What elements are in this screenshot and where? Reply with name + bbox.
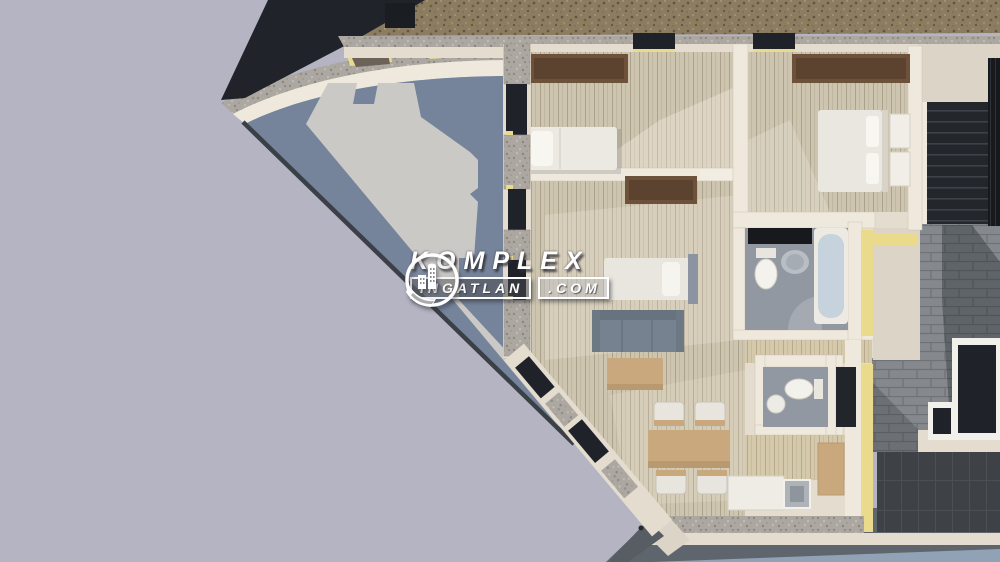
doorway-threshold bbox=[753, 49, 795, 52]
headboard bbox=[882, 110, 888, 192]
bottom-stone-cap bbox=[652, 516, 864, 533]
roof-hatch bbox=[385, 3, 415, 28]
dresser-inner bbox=[629, 180, 693, 200]
door-opening bbox=[700, 169, 733, 180]
pillow bbox=[662, 262, 680, 296]
insulation-strip bbox=[861, 230, 873, 336]
floorplan-render: KOMPLEX INGATLAN .COM bbox=[0, 0, 1000, 562]
coffee-table-edge bbox=[607, 384, 663, 390]
doorway-recess bbox=[633, 33, 675, 49]
wall-bedrooms-divider bbox=[733, 44, 748, 230]
sink-basin bbox=[786, 254, 804, 270]
toilet bbox=[755, 259, 777, 289]
wc bbox=[763, 367, 856, 427]
wall-bathroom-left bbox=[733, 228, 745, 337]
stone-pillar bbox=[504, 135, 530, 189]
facade-dot bbox=[639, 526, 644, 531]
sofa-armrest bbox=[592, 310, 600, 352]
stair-railing-slats bbox=[988, 58, 1000, 226]
stone-pillar bbox=[504, 44, 530, 84]
insulation-strip bbox=[873, 233, 918, 245]
daybed-headboard bbox=[688, 254, 698, 304]
bathroom-counter bbox=[748, 228, 812, 244]
dark-panel-roof bbox=[877, 452, 1000, 532]
pillow bbox=[866, 153, 879, 184]
doorway-recess bbox=[753, 33, 795, 49]
chair-back bbox=[656, 470, 686, 476]
dark-closet bbox=[836, 367, 856, 427]
wardrobe-inner bbox=[534, 58, 624, 79]
facade-window bbox=[506, 84, 527, 135]
sofa-back bbox=[592, 310, 684, 320]
toilet-tank bbox=[756, 248, 776, 258]
gravel-roof-band bbox=[326, 0, 1000, 36]
dining-table-edge bbox=[648, 461, 730, 468]
chair-back bbox=[697, 470, 727, 476]
watermark-domain-tld: .COM bbox=[538, 277, 609, 299]
pillow bbox=[866, 116, 879, 147]
komplex-logo-icon bbox=[402, 249, 462, 311]
skylight-glass-small bbox=[933, 408, 951, 434]
nightstand bbox=[890, 114, 910, 148]
pillow bbox=[531, 131, 553, 166]
sink-basin bbox=[790, 486, 804, 502]
kitchen-counter bbox=[728, 476, 784, 510]
nightstand bbox=[890, 152, 910, 186]
wardrobe-inner bbox=[796, 58, 906, 79]
watermark: KOMPLEX INGATLAN .COM bbox=[402, 249, 609, 299]
kitchen-cabinet bbox=[818, 443, 844, 495]
wc-toilet-tank bbox=[814, 379, 823, 399]
pillar-cap bbox=[506, 131, 513, 135]
insulation-strip bbox=[861, 364, 873, 532]
doorway-threshold bbox=[633, 49, 675, 52]
chair-back bbox=[695, 420, 725, 426]
chair-back bbox=[654, 420, 684, 426]
wall-bathroom-right bbox=[848, 222, 862, 340]
wc-toilet bbox=[785, 379, 813, 399]
wall-kitchen-right bbox=[845, 340, 861, 516]
wc-sink bbox=[767, 395, 785, 413]
stair-stringer bbox=[922, 102, 927, 224]
bottom-wall-band bbox=[640, 533, 1000, 545]
bathroom bbox=[745, 228, 848, 330]
skylight-glass-large bbox=[958, 345, 996, 433]
wall-zone-right bbox=[873, 228, 920, 360]
pillar-cap bbox=[506, 185, 513, 189]
bathtub-basin bbox=[818, 234, 844, 318]
facade-window bbox=[508, 189, 526, 230]
sofa-armrest bbox=[676, 310, 684, 352]
